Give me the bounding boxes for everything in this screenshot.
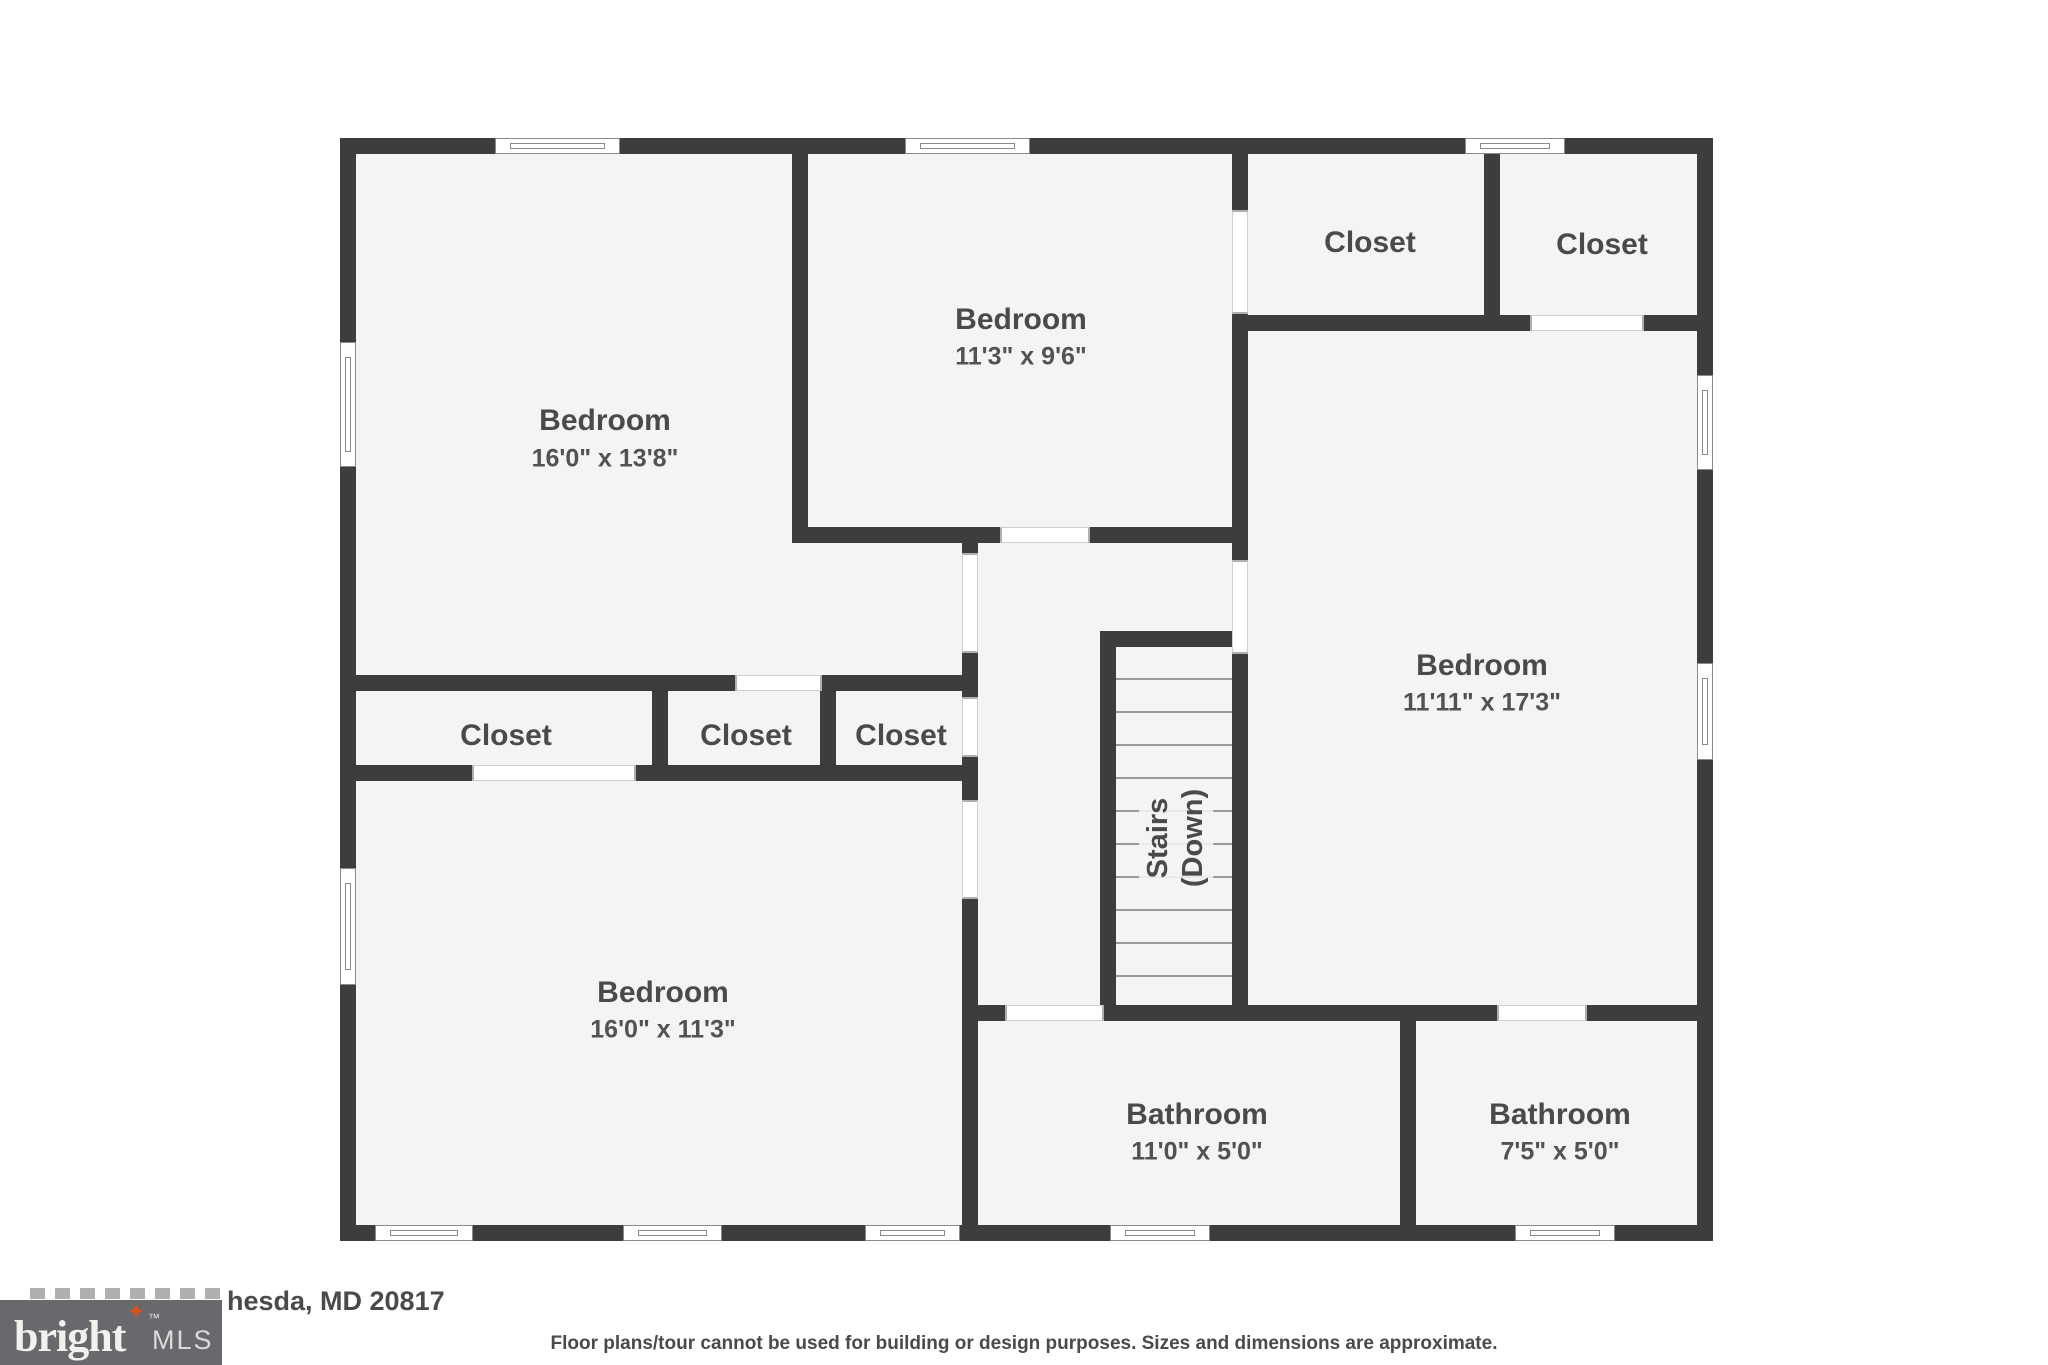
window-symbol	[1697, 663, 1713, 760]
window-symbol	[1465, 138, 1565, 154]
room-dims-bedroom-top-middle: 11'3" x 9'6"	[955, 343, 1087, 372]
room-label-closet-mid-center: Closet	[700, 719, 792, 753]
door-opening	[1005, 1005, 1104, 1021]
room-label-bedroom-bottom-left: Bedroom	[597, 976, 729, 1010]
room-label-bathroom-right: Bathroom	[1489, 1098, 1631, 1132]
room-label-bedroom-top-middle: Bedroom	[955, 303, 1087, 337]
window-symbol	[375, 1225, 473, 1241]
window-symbol	[340, 342, 356, 467]
stairs-label-line1: Stairs	[1141, 789, 1176, 887]
room-label-closet-mid-right: Closet	[855, 719, 947, 753]
window-symbol	[905, 138, 1030, 154]
wall	[1100, 631, 1116, 1021]
door-opening	[962, 553, 978, 653]
address-text: hesda, MD 20817	[227, 1286, 445, 1317]
wall	[340, 138, 356, 1241]
window-symbol	[340, 868, 356, 985]
floor-plan-page: Bedroom 16'0" x 13'8" Bedroom 11'3" x 9'…	[0, 0, 2048, 1365]
room-label-closet-top-right-2: Closet	[1556, 228, 1648, 262]
window-symbol	[623, 1225, 722, 1241]
room-dims-bathroom-left: 11'0" x 5'0"	[1131, 1138, 1263, 1167]
room-dims-bedroom-bottom-left: 16'0" x 11'3"	[590, 1016, 735, 1045]
door-opening	[1000, 527, 1090, 543]
wall	[1116, 631, 1232, 647]
room-dims-bedroom-right: 11'11" x 17'3"	[1403, 689, 1561, 718]
wall	[1484, 154, 1500, 315]
door-opening	[962, 800, 978, 899]
brightmls-logo: bright ✦ ™ MLS	[0, 1300, 222, 1365]
door-opening	[962, 697, 978, 757]
room-label-closet-top-right-1: Closet	[1324, 226, 1416, 260]
brightmls-logo-mls: MLS	[152, 1327, 214, 1354]
room-label-closet-mid-left: Closet	[460, 719, 552, 753]
occluded-address-fragment	[30, 1288, 220, 1299]
stairs-label: Stairs (Down)	[1139, 781, 1213, 895]
wall	[820, 675, 836, 781]
door-opening	[1530, 315, 1644, 331]
stairs-label-line2: (Down)	[1176, 789, 1211, 887]
star-icon: ✦	[127, 1301, 145, 1323]
door-opening	[472, 765, 636, 781]
window-symbol	[1697, 375, 1713, 470]
window-symbol	[865, 1225, 960, 1241]
wall	[340, 1225, 1713, 1241]
room-label-bathroom-left: Bathroom	[1126, 1098, 1268, 1132]
brightmls-logo-wordmark: bright	[14, 1315, 125, 1359]
door-opening	[1232, 210, 1248, 314]
wall	[792, 154, 808, 543]
disclaimer-text: Floor plans/tour cannot be used for buil…	[0, 1333, 2048, 1355]
room-label-bedroom-top-left: Bedroom	[539, 404, 671, 438]
trademark-symbol: ™	[148, 1312, 160, 1324]
door-opening	[735, 675, 822, 691]
window-symbol	[1515, 1225, 1615, 1241]
room-dims-bathroom-right: 7'5" x 5'0"	[1500, 1138, 1619, 1167]
door-opening	[1232, 560, 1248, 654]
window-symbol	[1110, 1225, 1210, 1241]
room-dims-bedroom-top-left: 16'0" x 13'8"	[532, 445, 679, 474]
door-opening	[1497, 1005, 1587, 1021]
wall	[1400, 1021, 1416, 1225]
wall	[652, 675, 668, 781]
room-label-bedroom-right: Bedroom	[1416, 649, 1548, 683]
window-symbol	[495, 138, 620, 154]
